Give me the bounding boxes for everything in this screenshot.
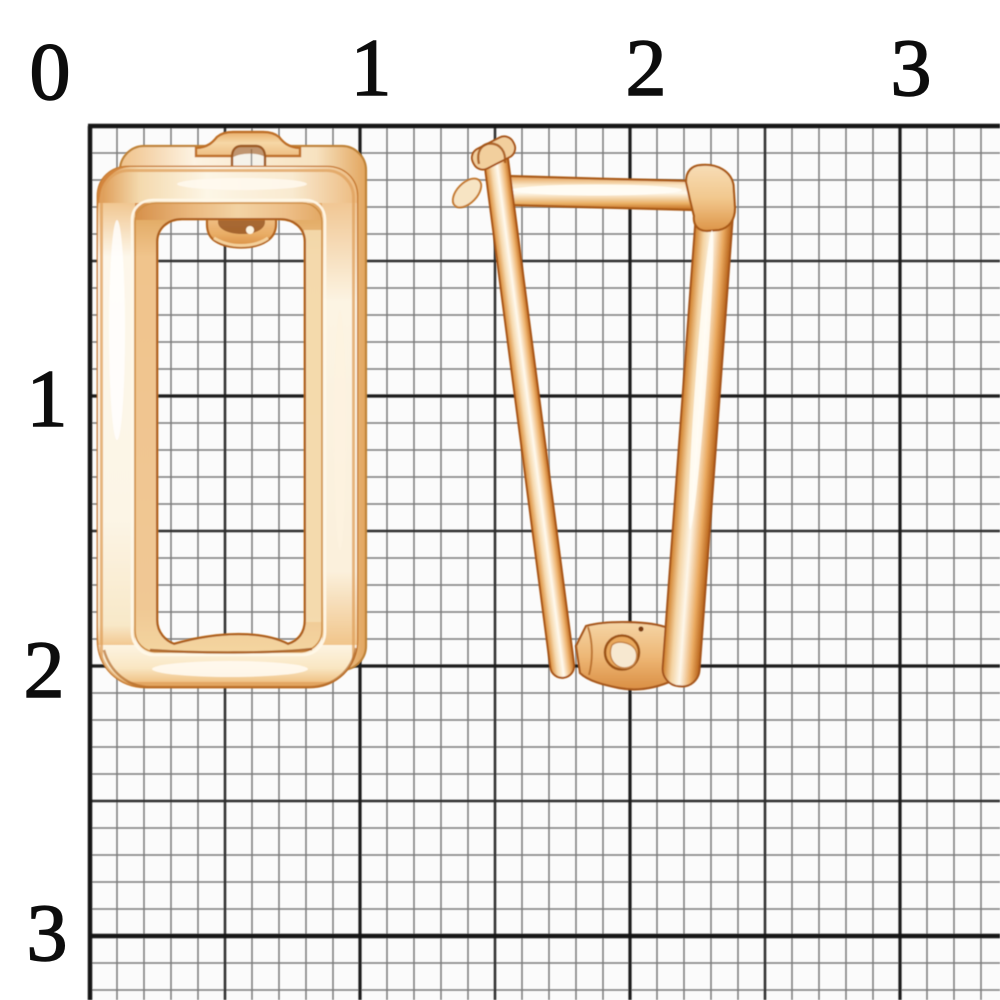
svg-text:1: 1: [351, 22, 392, 113]
svg-text:1: 1: [27, 353, 68, 444]
svg-text:3: 3: [891, 22, 932, 113]
svg-text:0: 0: [30, 26, 71, 117]
svg-text:3: 3: [27, 887, 68, 978]
svg-text:2: 2: [626, 22, 667, 113]
svg-text:2: 2: [24, 624, 65, 715]
